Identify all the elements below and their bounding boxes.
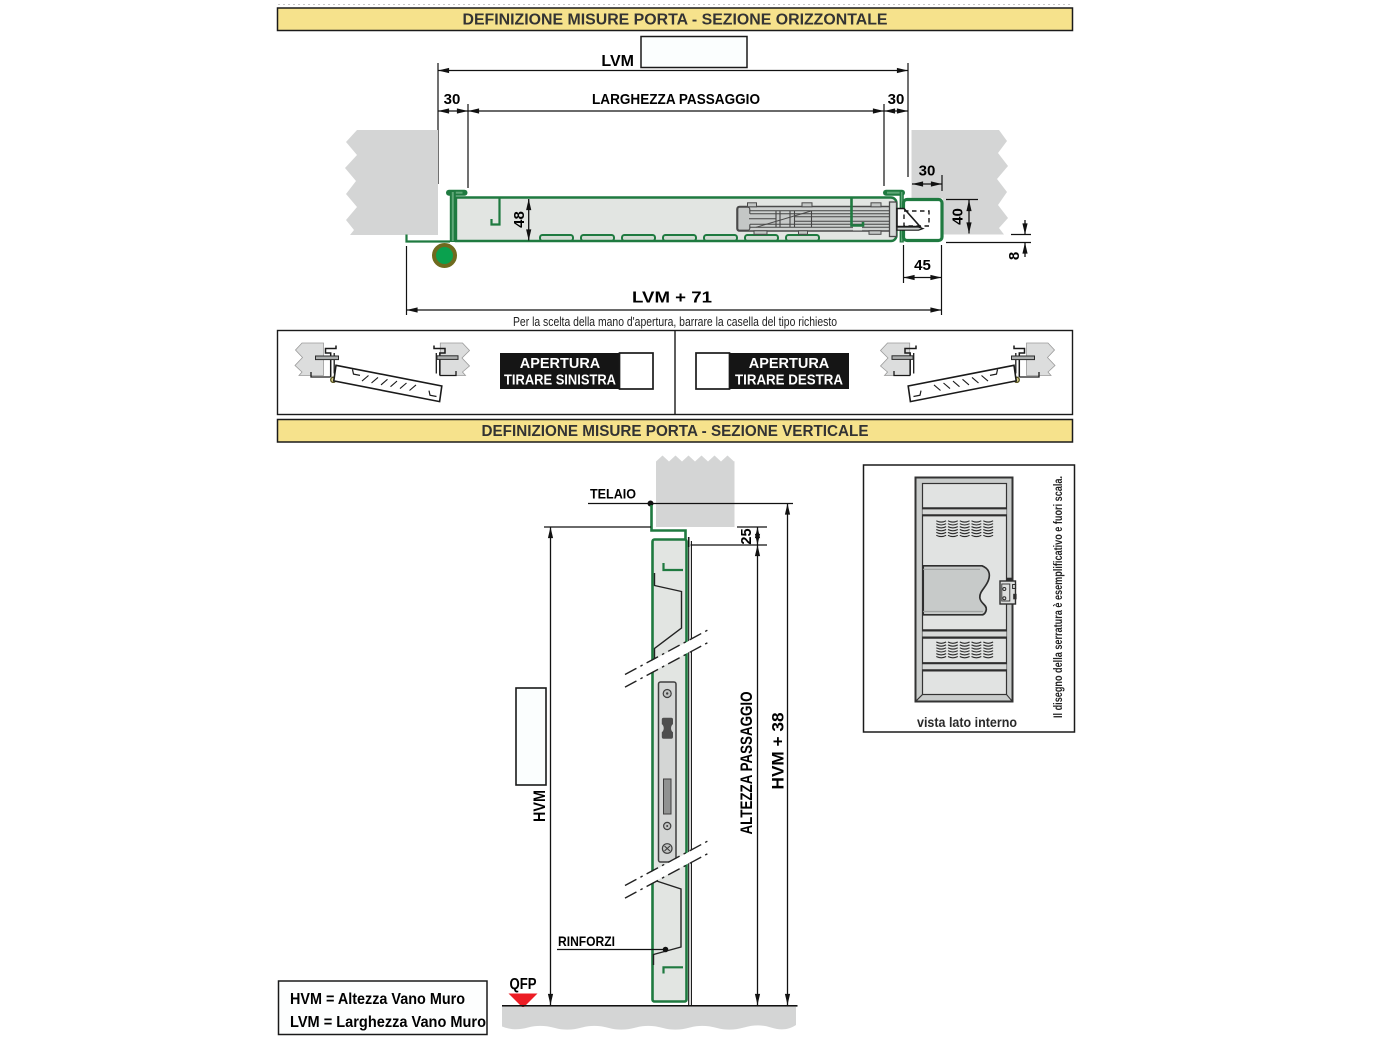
svg-text:48: 48 [511,211,528,228]
svg-text:vista lato interno: vista lato interno [917,714,1017,730]
svg-text:ALTEZZA PASSAGGIO: ALTEZZA PASSAGGIO [738,691,756,834]
svg-text:Per la scelta della mano d'ape: Per la scelta della mano d'apertura, bar… [513,314,837,329]
svg-text:Il disegno della serratura è e: Il disegno della serratura è esemplifica… [1053,476,1065,718]
svg-text:RINFORZI: RINFORZI [558,933,615,949]
svg-text:QFP: QFP [510,976,537,993]
svg-text:LVM: LVM [601,53,634,70]
svg-text:25: 25 [739,528,755,544]
svg-text:30: 30 [888,91,905,108]
svg-text:DEFINIZIONE MISURE PORTA - SEZ: DEFINIZIONE MISURE PORTA - SEZIONE VERTI… [482,423,869,440]
svg-text:DEFINIZIONE MISURE PORTA - SEZ: DEFINIZIONE MISURE PORTA - SEZIONE ORIZZ… [463,12,888,29]
svg-text:HVM: HVM [531,790,549,822]
svg-text:30: 30 [919,163,936,180]
svg-text:45: 45 [914,257,931,274]
svg-text:TIRARE DESTRA: TIRARE DESTRA [735,373,843,389]
svg-text:TELAIO: TELAIO [590,486,636,502]
svg-text:LVM = Larghezza Vano Muro: LVM = Larghezza Vano Muro [290,1014,486,1031]
svg-text:30: 30 [444,91,461,108]
svg-text:LARGHEZZA PASSAGGIO: LARGHEZZA PASSAGGIO [592,91,760,108]
svg-text:HVM = Altezza Vano Muro: HVM = Altezza Vano Muro [290,991,465,1008]
svg-text:APERTURA: APERTURA [520,356,601,372]
svg-text:LVM + 71: LVM + 71 [632,290,712,307]
svg-text:TIRARE SINISTRA: TIRARE SINISTRA [504,373,616,389]
svg-text:8: 8 [1006,252,1023,260]
svg-text:APERTURA: APERTURA [749,356,830,372]
svg-text:40: 40 [950,208,967,225]
svg-text:HVM + 38: HVM + 38 [770,713,788,790]
